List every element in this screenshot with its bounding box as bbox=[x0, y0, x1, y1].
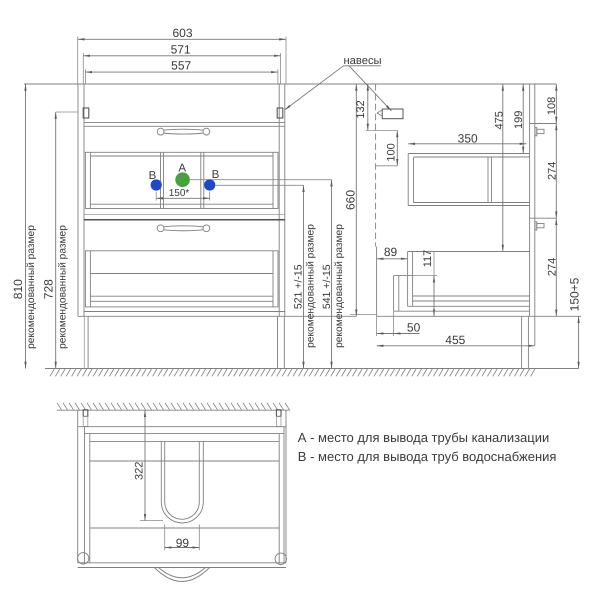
svg-text:199: 199 bbox=[513, 111, 525, 129]
svg-text:навесы: навесы bbox=[344, 55, 382, 67]
svg-text:рекомендованный размер: рекомендованный размер bbox=[334, 224, 345, 348]
svg-text:В - место для вывода труб водо: В - место для вывода труб водоснабжения bbox=[298, 449, 557, 464]
svg-text:117: 117 bbox=[422, 250, 434, 268]
svg-text:541 +/-15: 541 +/-15 bbox=[321, 264, 333, 309]
svg-text:728: 728 bbox=[41, 279, 55, 299]
svg-text:274: 274 bbox=[546, 258, 558, 276]
svg-text:50: 50 bbox=[407, 321, 421, 335]
svg-text:150*: 150* bbox=[169, 188, 190, 199]
svg-text:521 +/-15: 521 +/-15 bbox=[292, 264, 304, 309]
svg-text:350: 350 bbox=[458, 132, 478, 146]
svg-text:A: A bbox=[178, 163, 186, 175]
svg-text:150+5: 150+5 bbox=[567, 277, 581, 311]
svg-text:100: 100 bbox=[386, 143, 398, 161]
svg-text:475: 475 bbox=[493, 111, 505, 129]
svg-text:108: 108 bbox=[546, 97, 558, 115]
svg-text:рекомендованный размер: рекомендованный размер bbox=[26, 225, 37, 349]
svg-text:89: 89 bbox=[384, 245, 398, 259]
svg-text:рекомендованный размер: рекомендованный размер bbox=[57, 225, 68, 349]
svg-text:B: B bbox=[149, 170, 157, 182]
svg-text:рекомендованный размер: рекомендованный размер bbox=[305, 224, 316, 348]
svg-text:274: 274 bbox=[546, 162, 558, 180]
svg-text:571: 571 bbox=[171, 43, 191, 57]
svg-text:322: 322 bbox=[134, 462, 146, 480]
svg-text:B: B bbox=[212, 169, 220, 181]
svg-text:455: 455 bbox=[445, 333, 465, 347]
svg-text:557: 557 bbox=[171, 59, 191, 73]
svg-text:А - место для вывода трубы кан: А - место для вывода трубы канализации bbox=[298, 430, 549, 445]
svg-text:132: 132 bbox=[355, 100, 367, 118]
svg-text:660: 660 bbox=[344, 190, 358, 210]
svg-text:810: 810 bbox=[11, 279, 25, 299]
svg-text:603: 603 bbox=[172, 26, 192, 40]
svg-text:99: 99 bbox=[176, 536, 190, 550]
